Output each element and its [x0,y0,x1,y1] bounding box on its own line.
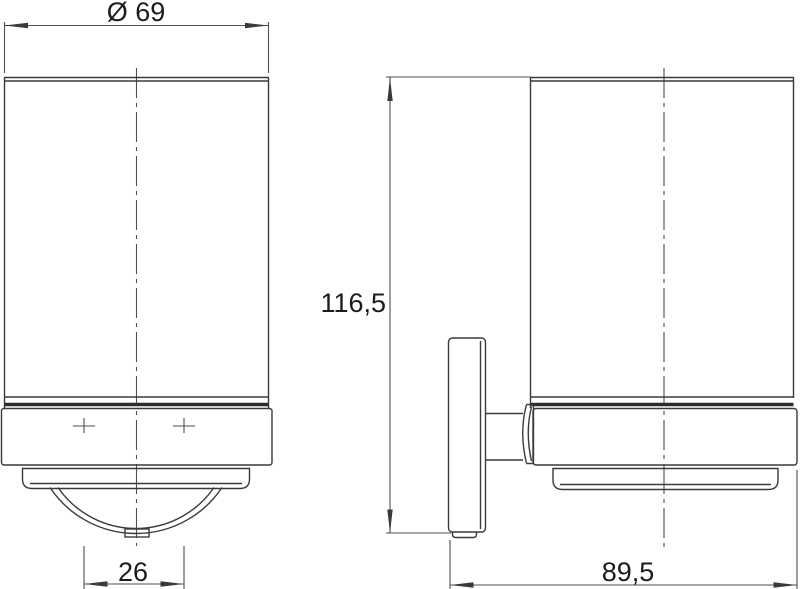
front-view [2,68,273,546]
dimension-height: 116,5 [320,77,530,533]
drawing-svg: Ø 69 116,5 26 89,5 [0,0,800,589]
arrowhead-right [161,581,185,586]
side-holder-ring [533,409,797,466]
arrowhead-left [84,581,108,586]
side-holder-shelf [553,469,778,490]
wall-plate-foot [453,532,477,538]
side-view [449,68,798,548]
dimension-depth: 89,5 [450,470,797,589]
arrowhead-down [387,510,392,534]
depth-label: 89,5 [602,557,655,587]
arrowhead-left [450,582,474,587]
arrowhead-right [245,23,269,28]
arrowhead-left [5,23,29,28]
arrowhead-right [774,582,798,587]
height-label: 116,5 [320,288,386,318]
side-glass-cylinder [530,78,794,409]
front-screw-cross-left [73,418,95,433]
arrowhead-up [387,78,392,102]
mounting-arm [486,405,534,464]
front-screw-cross-right [173,418,195,433]
diameter-label: Ø 69 [107,0,166,27]
hole-spacing-label: 26 [118,557,148,587]
technical-drawing-tumbler-holder: Ø 69 116,5 26 89,5 [0,0,800,589]
wall-plate [449,338,486,538]
dimension-diameter: Ø 69 [5,0,269,73]
dimension-hole-spacing: 26 [84,546,184,589]
